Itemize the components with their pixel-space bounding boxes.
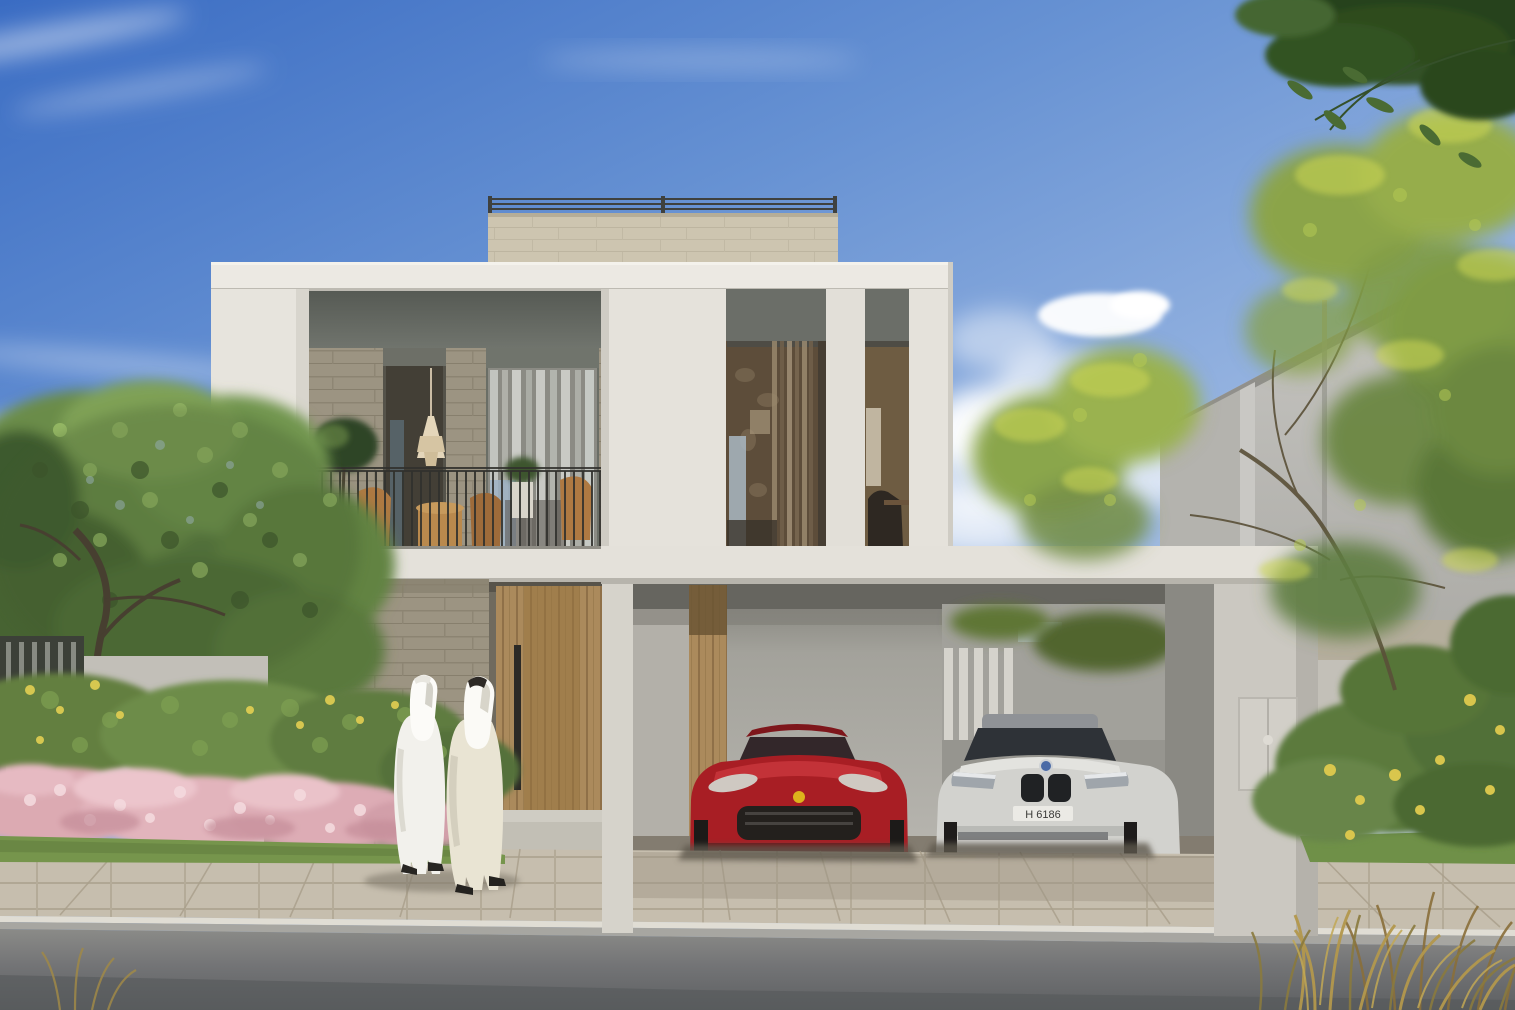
svg-text:H 6186: H 6186 bbox=[1025, 809, 1060, 821]
